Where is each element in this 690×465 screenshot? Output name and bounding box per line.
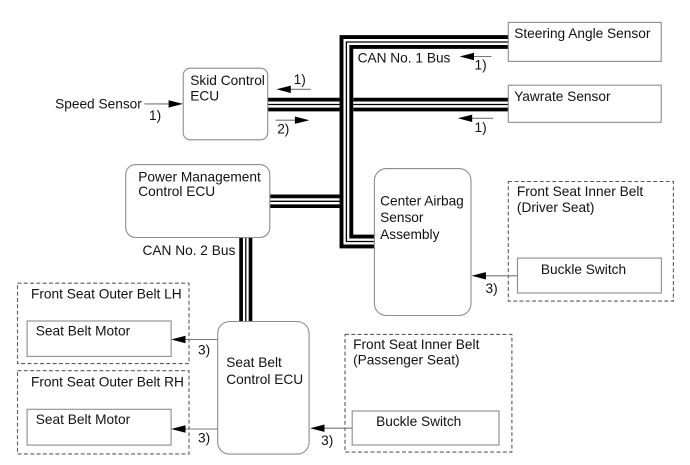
- svg-text:Power Management: Power Management: [138, 170, 261, 185]
- svg-text:3): 3): [486, 281, 498, 296]
- svg-text:Buckle Switch: Buckle Switch: [376, 414, 461, 429]
- svg-text:Front Seat Outer Belt LH: Front Seat Outer Belt LH: [31, 286, 182, 301]
- svg-text:Front Seat Inner Belt: Front Seat Inner Belt: [517, 184, 643, 199]
- svg-text:Control ECU: Control ECU: [138, 184, 215, 199]
- svg-text:1): 1): [294, 72, 306, 87]
- svg-text:3): 3): [198, 431, 210, 446]
- svg-text:Front Seat Inner Belt: Front Seat Inner Belt: [353, 337, 479, 352]
- svg-text:ECU: ECU: [190, 88, 219, 103]
- svg-text:(Driver Seat): (Driver Seat): [517, 200, 595, 215]
- svg-text:(Passenger Seat): (Passenger Seat): [353, 353, 460, 368]
- svg-text:Skid Control: Skid Control: [190, 73, 265, 88]
- svg-text:Center Airbag: Center Airbag: [380, 194, 464, 209]
- svg-text:3): 3): [321, 433, 333, 448]
- svg-text:Front Seat Outer Belt RH: Front Seat Outer Belt RH: [31, 374, 184, 389]
- svg-text:1): 1): [475, 58, 487, 73]
- svg-text:Speed Sensor: Speed Sensor: [55, 97, 142, 112]
- svg-text:2): 2): [277, 122, 289, 137]
- svg-text:Sensor: Sensor: [380, 210, 424, 225]
- svg-text:Seat Belt: Seat Belt: [226, 355, 282, 370]
- svg-text:1): 1): [149, 108, 161, 123]
- svg-text:3): 3): [198, 343, 210, 358]
- svg-text:Yawrate Sensor: Yawrate Sensor: [514, 89, 611, 104]
- svg-text:CAN No. 1 Bus: CAN No. 1 Bus: [358, 50, 451, 65]
- svg-text:1): 1): [475, 120, 487, 135]
- svg-text:CAN No. 2 Bus: CAN No. 2 Bus: [143, 243, 236, 258]
- svg-text:Seat Belt Motor: Seat Belt Motor: [36, 412, 131, 427]
- svg-text:Assembly: Assembly: [380, 227, 439, 242]
- svg-text:Seat Belt Motor: Seat Belt Motor: [36, 324, 131, 339]
- svg-text:Steering Angle Sensor: Steering Angle Sensor: [514, 26, 651, 41]
- svg-text:Control ECU: Control ECU: [226, 372, 303, 387]
- svg-text:Buckle Switch: Buckle Switch: [541, 262, 626, 277]
